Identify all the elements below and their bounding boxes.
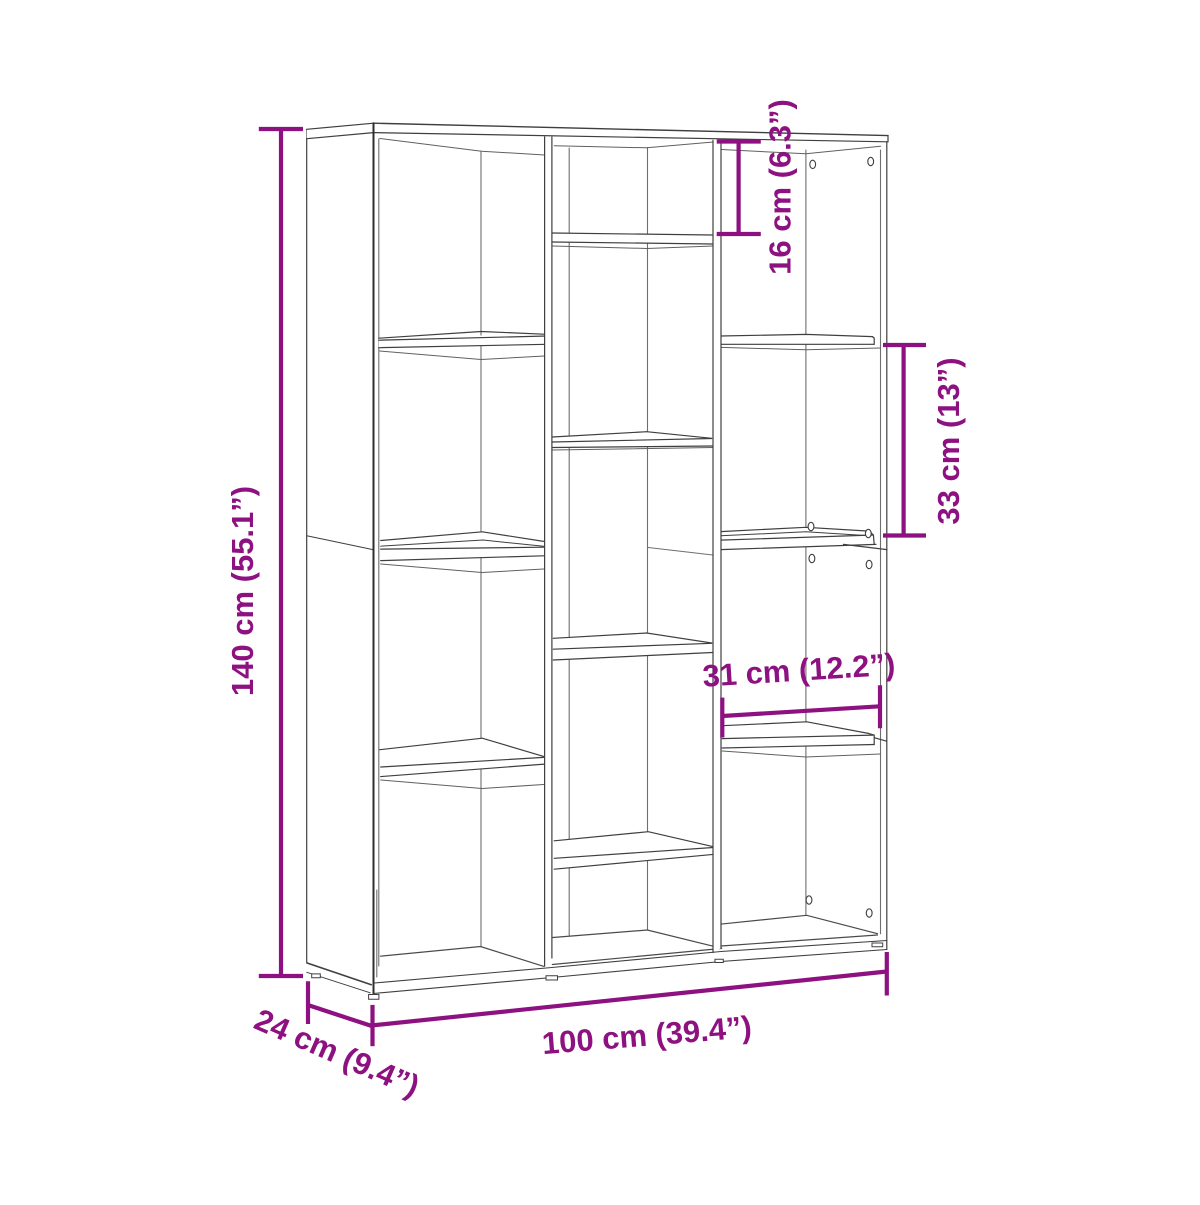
- svg-text:24 cm (9.4”): 24 cm (9.4”): [249, 1002, 424, 1104]
- svg-text:16 cm (6.3”): 16 cm (6.3”): [763, 99, 798, 275]
- svg-text:31 cm (12.2”): 31 cm (12.2”): [701, 647, 896, 694]
- svg-text:33 cm (13”): 33 cm (13”): [931, 357, 966, 524]
- svg-text:100 cm (39.4”): 100 cm (39.4”): [541, 1009, 753, 1061]
- svg-text:140 cm (55.1”): 140 cm (55.1”): [225, 486, 260, 696]
